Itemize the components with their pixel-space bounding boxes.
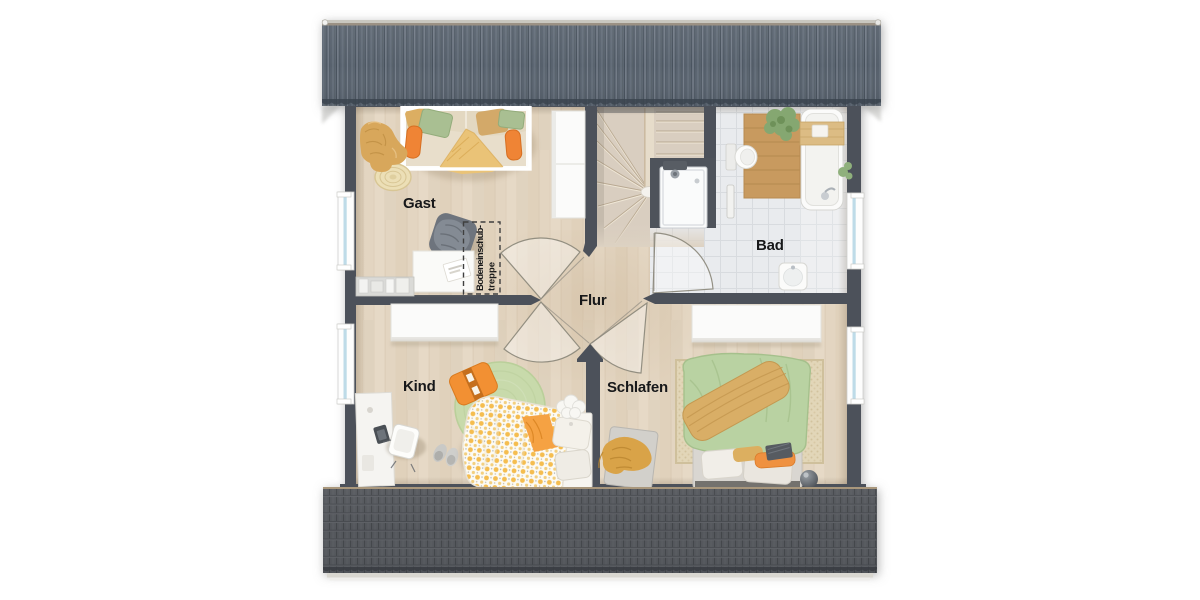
svg-text:Bodeneinschub-: Bodeneinschub- <box>475 225 486 291</box>
svg-text:treppe: treppe <box>487 262 498 291</box>
svg-text:Bad: Bad <box>756 237 784 254</box>
svg-text:Flur: Flur <box>579 292 607 309</box>
svg-text:Kind: Kind <box>403 378 436 395</box>
svg-text:Gast: Gast <box>403 195 436 212</box>
svg-text:Schlafen: Schlafen <box>607 379 668 396</box>
